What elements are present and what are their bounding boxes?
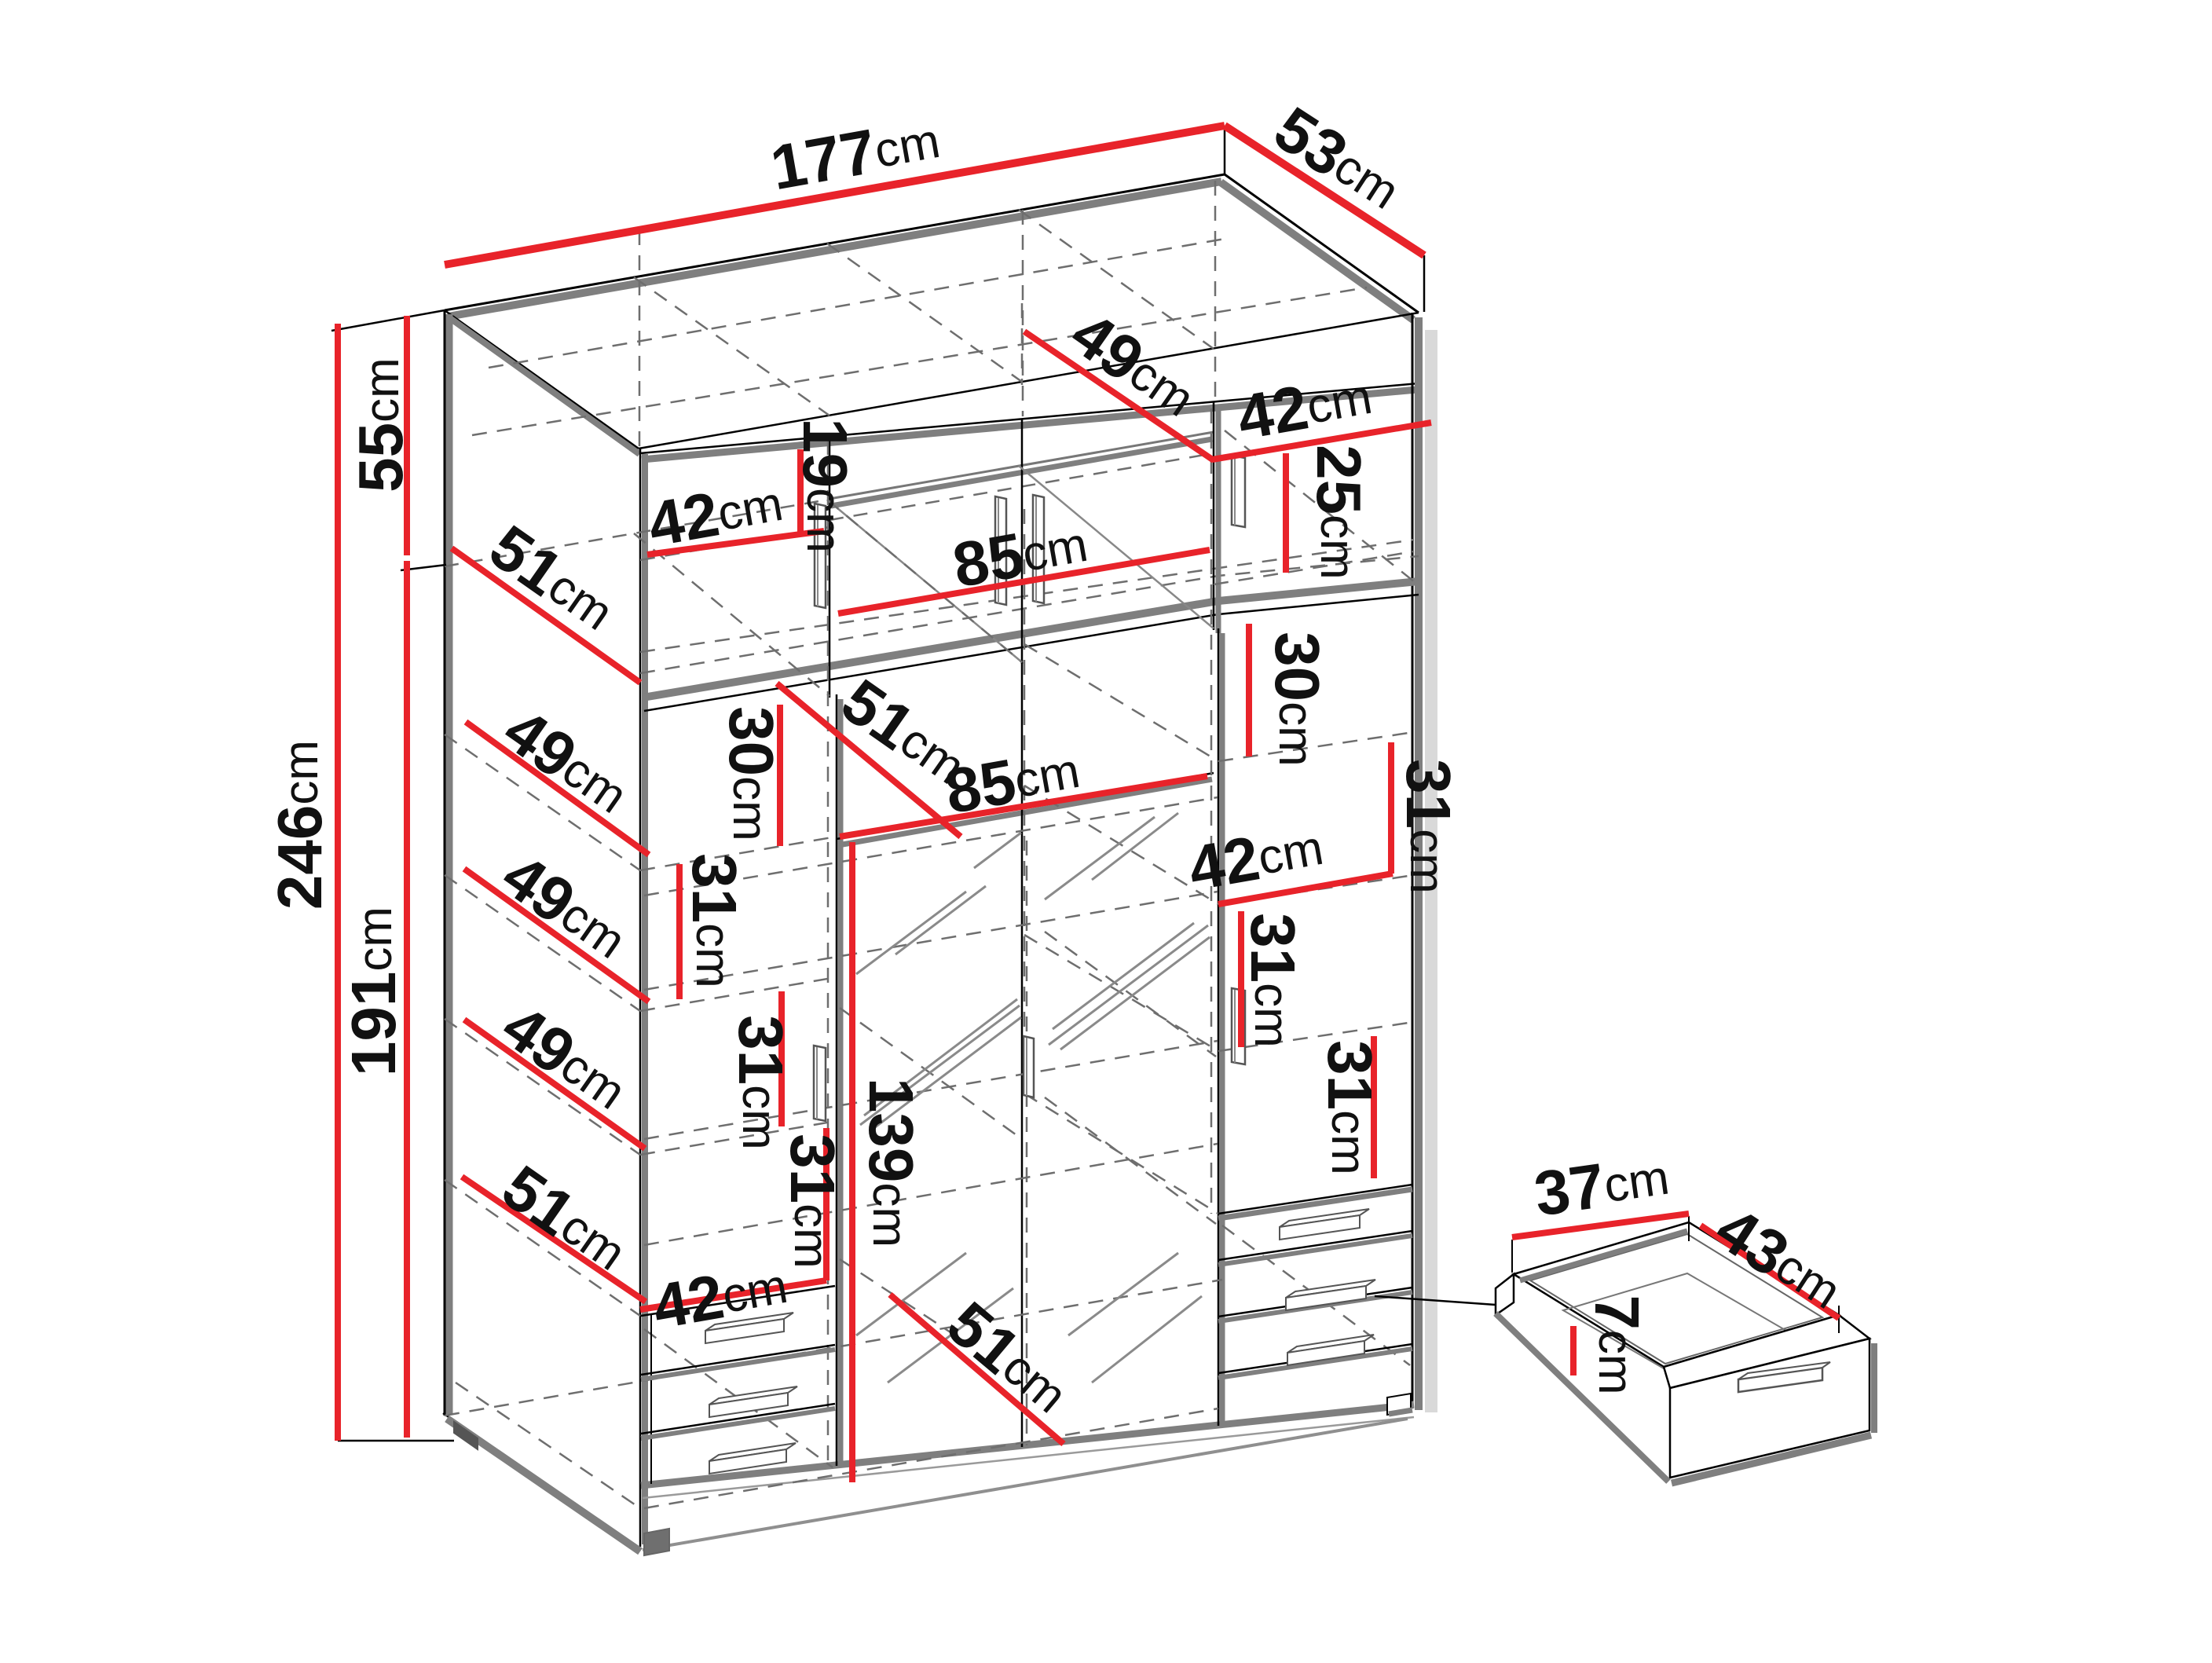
svg-text:31cm: 31cm (1315, 1040, 1385, 1175)
svg-text:7cm: 7cm (1582, 1295, 1652, 1394)
svg-text:246cm: 246cm (265, 740, 335, 910)
svg-text:30cm: 30cm (1262, 632, 1332, 767)
svg-text:30cm: 30cm (716, 706, 786, 841)
svg-text:139cm: 139cm (856, 1078, 926, 1247)
svg-text:31cm: 31cm (1238, 913, 1308, 1048)
svg-text:55cm: 55cm (346, 357, 416, 493)
svg-text:31cm: 31cm (1393, 759, 1463, 894)
svg-text:31cm: 31cm (679, 853, 749, 988)
svg-text:19cm: 19cm (790, 418, 860, 553)
svg-text:31cm: 31cm (726, 1015, 796, 1150)
svg-text:25cm: 25cm (1304, 445, 1374, 580)
svg-text:191cm: 191cm (339, 907, 408, 1076)
svg-text:31cm: 31cm (778, 1134, 848, 1269)
